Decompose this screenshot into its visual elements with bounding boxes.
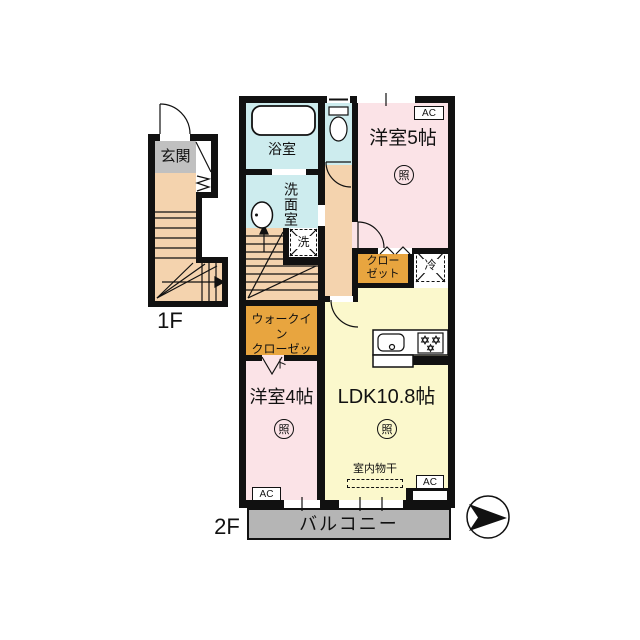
- floor-plan: 玄関 1F 浴室 洗面室 洗 冷 洋室5帖 照 AC クロー ゼット ウォークイ…: [0, 0, 640, 640]
- western5-ac-label: AC: [414, 106, 444, 120]
- western5-light-symbol: 照: [394, 165, 414, 185]
- sink-icon: [252, 202, 273, 228]
- indoor-drying-label: 室内物干: [345, 462, 405, 476]
- washer-label: 洗: [290, 233, 317, 252]
- shoe-cabinet-diagonal: [196, 142, 211, 172]
- toilet-icon: [329, 107, 348, 141]
- entrance-door-icon: [160, 104, 190, 134]
- north-arrow-icon: [467, 496, 509, 538]
- lineart-layer: [0, 0, 640, 640]
- western5-label: 洋室5帖: [358, 128, 448, 150]
- bathtub-icon: [252, 106, 315, 135]
- washroom-label: 洗面室: [283, 180, 299, 228]
- indoor-drying-box: [347, 479, 403, 488]
- ldk-light-symbol: 照: [377, 419, 397, 439]
- closet-bifold-icon: [380, 247, 410, 254]
- floor1-label: 1F: [148, 308, 192, 334]
- floor1-stairs-icon: [155, 212, 224, 301]
- western5-door-icon: [358, 222, 384, 248]
- balcony-label: バルコニー: [247, 510, 451, 538]
- toilet-door-icon: [326, 162, 351, 187]
- bathroom-label: 浴室: [246, 140, 318, 158]
- ldk-door-icon: [331, 300, 358, 327]
- walkin-label: ウォークイン クローゼット: [246, 312, 317, 372]
- western4-label: 洋室4帖: [246, 386, 317, 408]
- ldk-ac-label: AC: [416, 475, 444, 489]
- kitchen-counter-icon: [373, 330, 448, 367]
- ldk-label: LDK10.8帖: [325, 385, 448, 409]
- western4-ac-label: AC: [252, 487, 281, 501]
- floor2-label: 2F: [205, 514, 249, 540]
- entrance-label: 玄関: [155, 141, 196, 173]
- stair-break-icon: [197, 176, 209, 191]
- closet-label: クロー ゼット: [358, 255, 408, 281]
- western4-light-symbol: 照: [274, 419, 294, 439]
- fridge-label: 冷: [416, 256, 445, 276]
